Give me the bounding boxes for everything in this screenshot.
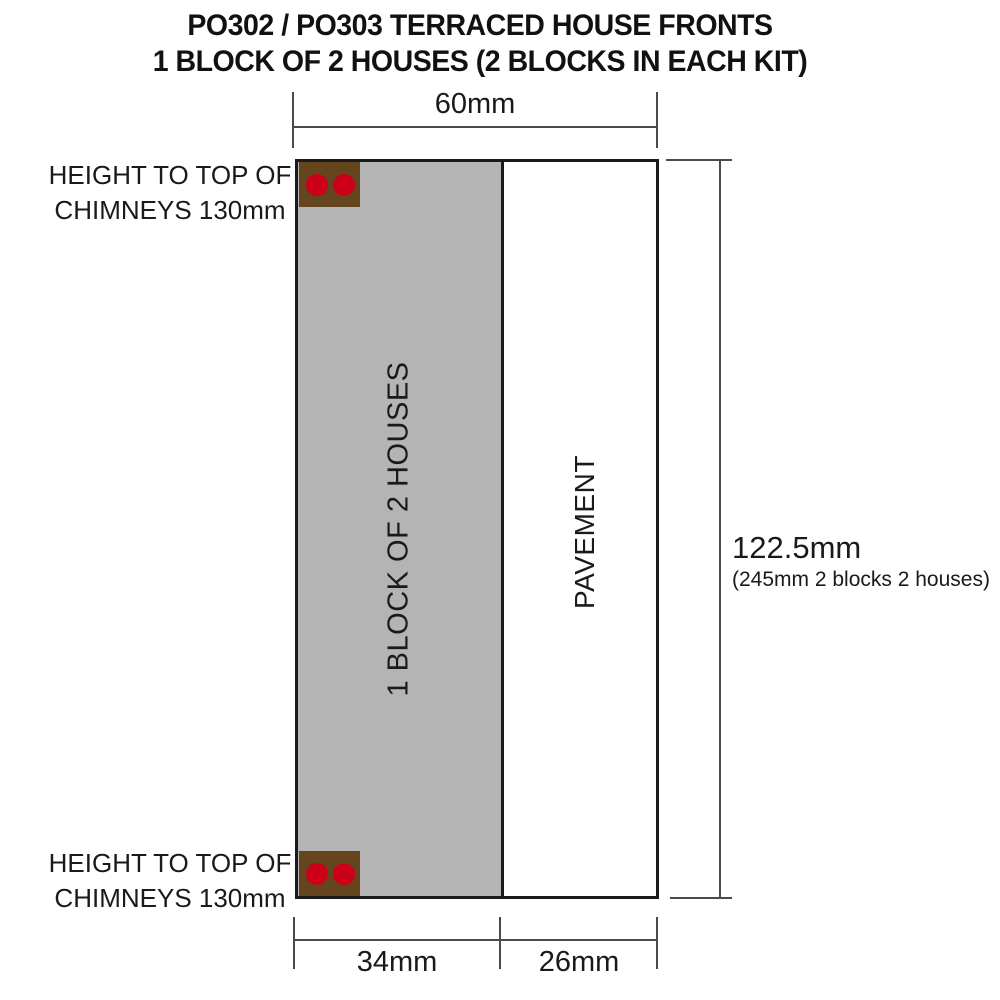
chimney-note-bottom-line-2: CHIMNEYS 130mm xyxy=(48,881,292,916)
dim-right-line xyxy=(719,159,721,899)
dim-right-top-tick xyxy=(666,159,732,161)
chimney-pot-icon xyxy=(333,863,355,885)
chimney-note-top: HEIGHT TO TOP OF CHIMNEYS 130mm xyxy=(48,158,292,228)
title-line-1: PO302 / PO303 TERRACED HOUSE FRONTS xyxy=(24,8,936,44)
dim-bottom-pavement-width-label: 26mm xyxy=(500,946,658,979)
chimney-note-top-line-2: CHIMNEYS 130mm xyxy=(48,193,292,228)
dim-right-height-label: 122.5mm xyxy=(732,530,861,566)
pavement-label: PAVEMENT xyxy=(569,455,601,609)
house-block-label: 1 BLOCK OF 2 HOUSES xyxy=(383,361,416,696)
diagram-canvas: PO302 / PO303 TERRACED HOUSE FRONTS 1 BL… xyxy=(0,0,1000,1000)
chimney-note-bottom-line-1: HEIGHT TO TOP OF xyxy=(48,846,292,881)
chimney-note-top-line-1: HEIGHT TO TOP OF xyxy=(48,158,292,193)
dim-top-width-label: 60mm xyxy=(292,88,658,121)
chimney-note-bottom: HEIGHT TO TOP OF CHIMNEYS 130mm xyxy=(48,846,292,916)
chimney-pot-icon xyxy=(306,174,328,196)
house-pavement-divider xyxy=(501,162,504,896)
diagram-title: PO302 / PO303 TERRACED HOUSE FRONTS 1 BL… xyxy=(24,8,936,80)
chimney-block-top xyxy=(299,162,360,207)
chimney-pot-icon xyxy=(333,174,355,196)
title-line-2: 1 BLOCK OF 2 HOUSES (2 BLOCKS IN EACH KI… xyxy=(24,44,936,80)
dim-top-line xyxy=(292,126,658,128)
dim-right-bottom-tick xyxy=(670,897,732,899)
dim-bottom-block-width-label: 34mm xyxy=(294,946,500,979)
dim-right-height-note: (245mm 2 blocks 2 houses) xyxy=(732,568,990,592)
plan-block: 1 BLOCK OF 2 HOUSES PAVEMENT xyxy=(295,159,659,899)
chimney-block-bottom xyxy=(299,851,360,896)
chimney-pot-icon xyxy=(306,863,328,885)
dim-bottom-line xyxy=(293,939,658,941)
